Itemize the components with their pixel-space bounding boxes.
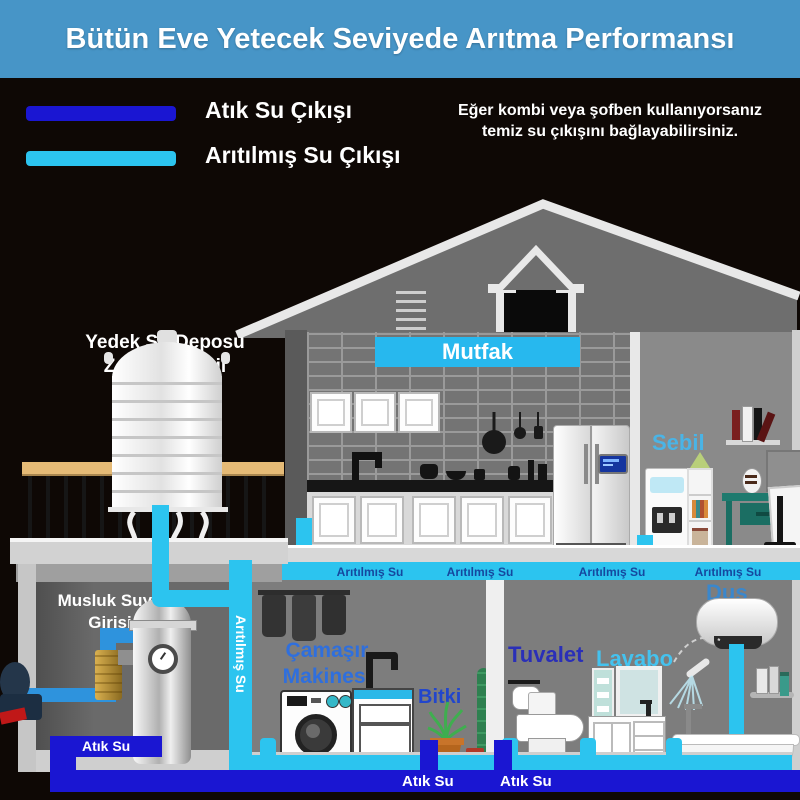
- teapot-icon: [420, 464, 438, 479]
- tank-lug: [104, 352, 113, 364]
- water-tank-body: [112, 376, 222, 508]
- shampoo-bottle-icon: [756, 668, 768, 694]
- lower-cabinet-door: [412, 496, 456, 544]
- kitchen-label: Mutfak: [442, 339, 513, 365]
- book-icon: [742, 406, 753, 442]
- lower-cabinet-door: [508, 496, 552, 544]
- tank-outlet-pipe-vertical: [152, 505, 169, 597]
- waste-label-bottom: Atık Su: [402, 773, 454, 790]
- legend-clean-label: Arıtılmış Su Çıkışı: [205, 142, 401, 169]
- washer-knob: [339, 695, 352, 708]
- wall-shelf: [726, 440, 780, 445]
- kitchen-faucet-icon: [375, 452, 382, 468]
- tank-lug: [221, 352, 230, 364]
- legend-note-line2: temiz su çıkışını bağlayabilirsiniz.: [450, 121, 770, 142]
- waste-stub: [420, 740, 438, 774]
- legend-clean-swatch: [26, 151, 176, 166]
- lower-cabinet-door: [460, 496, 504, 544]
- shelf-books: [692, 500, 708, 518]
- refrigerator: [553, 425, 630, 549]
- bottle-icon: [528, 460, 534, 480]
- kitchen-label-box: Mutfak: [375, 337, 580, 367]
- lower-cabinet-door: [312, 496, 356, 544]
- laundry-faucet-icon: [366, 652, 373, 690]
- lower-cabinet-door: [360, 496, 404, 544]
- upper-cabinet: [398, 392, 440, 433]
- washer-knob: [326, 695, 339, 708]
- mid-floor-slab: [285, 545, 800, 562]
- dormer-opening: [504, 290, 568, 334]
- clean-pipe-label: Arıtılmış Su: [562, 565, 662, 579]
- washer-display: [287, 696, 307, 706]
- clean-elbow: [666, 738, 682, 766]
- shampoo-bottle-icon: [780, 672, 789, 696]
- bathroom-cabinet: [592, 668, 614, 718]
- dispenser-panel: [652, 507, 682, 533]
- dormer-gable: [498, 250, 574, 290]
- basin-faucet-icon: [640, 700, 652, 704]
- interior-pillar: [486, 580, 504, 756]
- desk-leg: [726, 501, 732, 549]
- book-icon: [732, 410, 740, 440]
- waste-stub: [494, 740, 512, 774]
- plant-icon: [690, 452, 710, 468]
- dormer-window: [488, 242, 584, 334]
- waste-label-filter: Atık Su: [82, 738, 130, 754]
- wall-mask-icon: [742, 468, 762, 494]
- tub-faucet-icon: [686, 706, 691, 736]
- page-title: Bütün Eve Yetecek Seviyede Arıtma Perfor…: [66, 23, 735, 56]
- clean-floor-pipe: [245, 755, 792, 771]
- clean-riser-pipe: Arıtılmış Su: [229, 560, 252, 772]
- upper-cabinet: [310, 392, 352, 433]
- toilet-label: Tuvalet: [508, 642, 583, 668]
- pressure-gauge-icon: [148, 644, 178, 674]
- washer-door: [295, 714, 337, 756]
- legend-note-line1: Eğer kombi veya şofben kullanıyorsanız: [450, 100, 770, 121]
- clean-elbow: [580, 738, 596, 766]
- hanging-shirt-icon: [262, 595, 286, 637]
- mirror: [616, 666, 662, 718]
- legend-waste-swatch: [26, 106, 176, 121]
- clean-riser-label: Arıtılmış Su: [233, 615, 249, 693]
- roof-ladder: [396, 288, 426, 330]
- waste-label-bottom: Atık Su: [500, 773, 552, 790]
- shampoo-bottle-icon: [769, 666, 779, 694]
- cup-icon: [474, 469, 485, 480]
- upper-cabinet: [354, 392, 396, 433]
- kitchen-faucet-icon: [352, 452, 359, 482]
- clean-pipe-label: Arıtılmış Su: [320, 565, 420, 579]
- filter-inlet-port: [118, 650, 134, 665]
- kitchen-counter: [307, 480, 557, 492]
- clean-pipe-label: Arıtılmış Su: [430, 565, 530, 579]
- clean-pipe-label: Arıtılmış Su: [678, 565, 778, 579]
- hanging-shirt-icon: [292, 595, 316, 641]
- office-chair: [777, 496, 783, 544]
- shelf-basket: [692, 528, 708, 545]
- header-banner: Bütün Eve Yetecek Seviyede Arıtma Perfor…: [0, 0, 800, 78]
- laundry-faucet-icon: [391, 656, 398, 670]
- hanging-pans-icon: [480, 412, 552, 460]
- legend-note: Eğer kombi veya şofben kullanıyorsanız t…: [450, 100, 770, 142]
- shelf-unit: [687, 468, 713, 548]
- dispenser-bottle: [650, 477, 684, 493]
- jar-icon: [508, 466, 520, 480]
- toilet-paper-icon: [508, 680, 540, 684]
- fridge-display: [598, 454, 628, 474]
- room-divider: [630, 332, 640, 545]
- clean-elbow: [260, 738, 276, 766]
- tub-faucet-icon: [684, 704, 702, 709]
- bottle-icon: [538, 464, 547, 480]
- legend-waste-label: Atık Su Çıkışı: [205, 97, 352, 124]
- hanging-shirt-icon: [322, 595, 346, 635]
- fridge-handle: [584, 444, 588, 484]
- infographic-scene: Bütün Eve Yetecek Seviyede Arıtma Perfor…: [0, 0, 800, 800]
